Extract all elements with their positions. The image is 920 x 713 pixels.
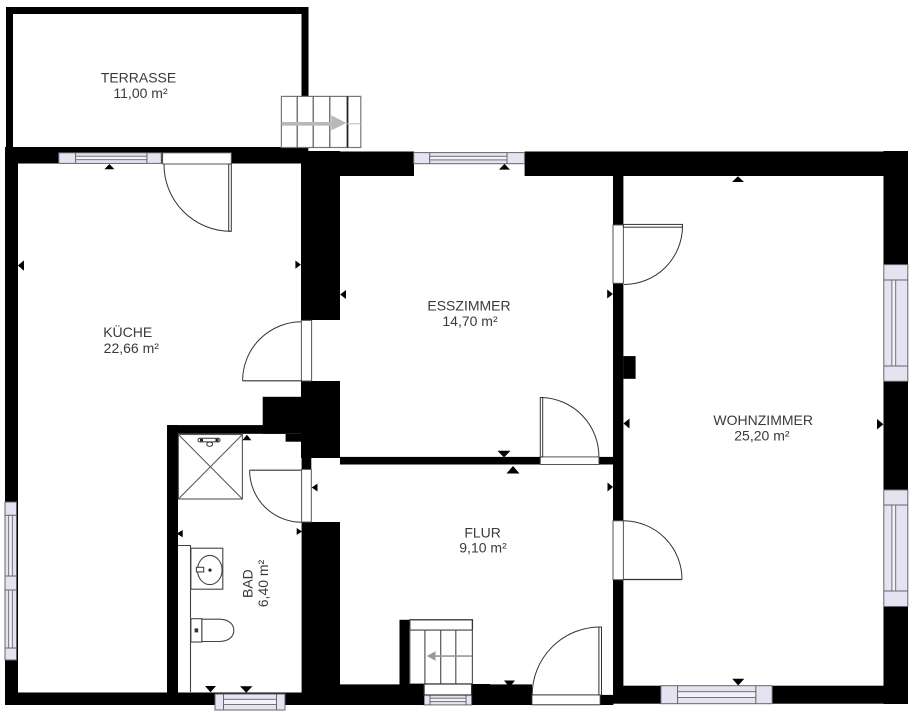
- svg-text:WOHNZIMMER: WOHNZIMMER: [713, 412, 813, 428]
- svg-text:KÜCHE: KÜCHE: [103, 323, 152, 340]
- svg-text:TERRASSE: TERRASSE: [101, 69, 176, 85]
- svg-text:22,66 m²: 22,66 m²: [104, 340, 160, 356]
- svg-text:9,10 m²: 9,10 m²: [459, 539, 507, 555]
- svg-text:11,00 m²: 11,00 m²: [113, 85, 168, 101]
- svg-text:25,20 m²: 25,20 m²: [734, 427, 790, 443]
- svg-text:BAD: BAD: [240, 569, 256, 598]
- svg-text:ESSZIMMER: ESSZIMMER: [427, 297, 510, 313]
- svg-text:14,70 m²: 14,70 m²: [442, 313, 498, 329]
- svg-text:FLUR: FLUR: [464, 525, 501, 541]
- svg-text:6,40 m²: 6,40 m²: [255, 559, 271, 607]
